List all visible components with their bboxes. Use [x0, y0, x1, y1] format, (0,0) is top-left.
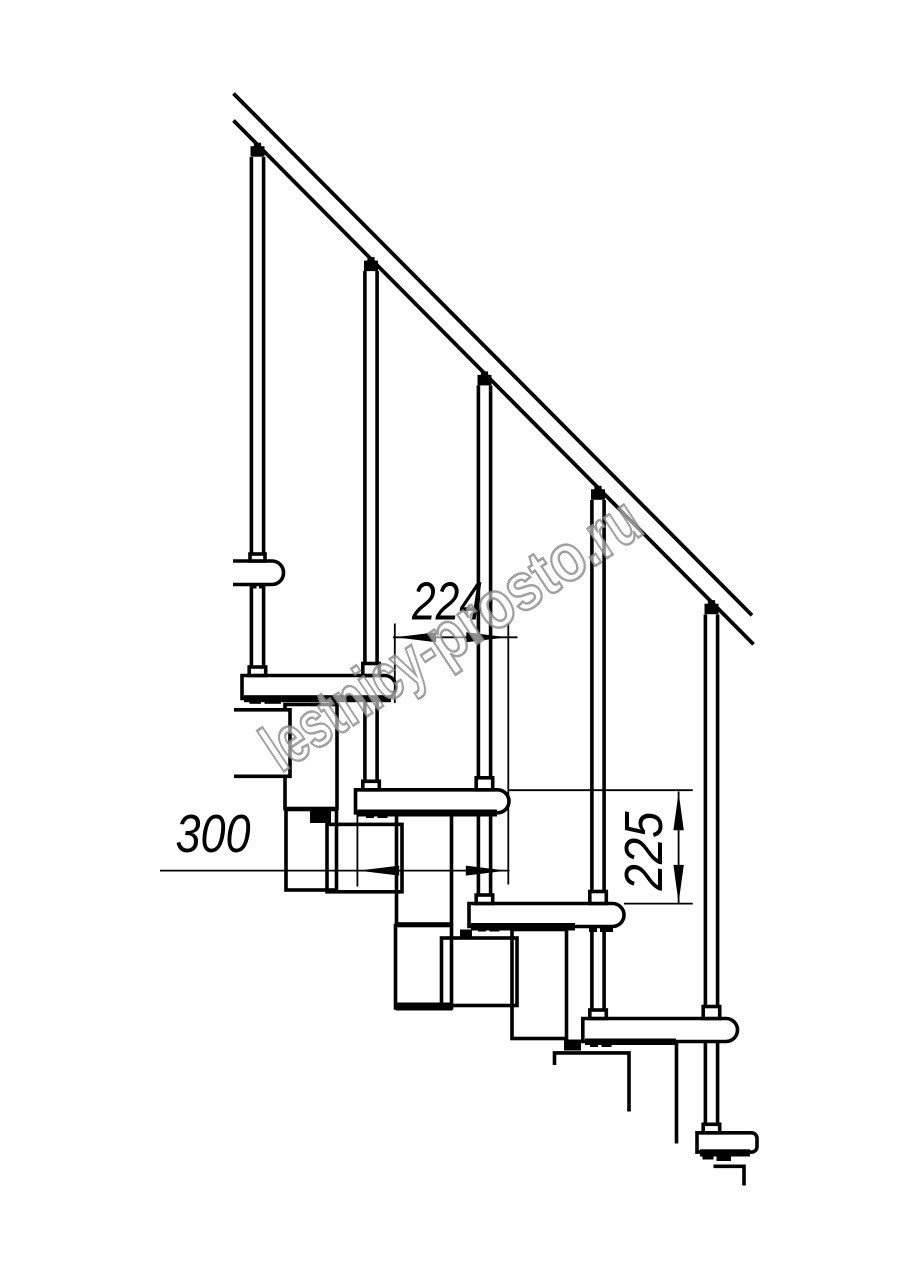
svg-text:300: 300	[176, 804, 251, 864]
svg-text:225: 225	[614, 811, 674, 892]
